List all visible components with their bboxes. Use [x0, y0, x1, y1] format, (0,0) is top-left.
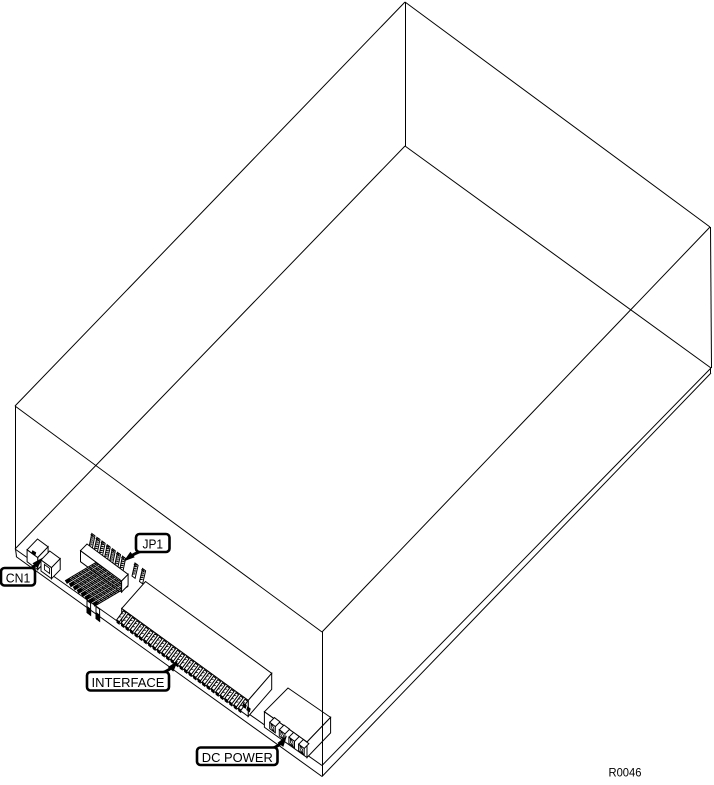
svg-text:R0046: R0046	[609, 766, 642, 780]
svg-text:CN1: CN1	[6, 570, 31, 585]
svg-text:INTERFACE: INTERFACE	[92, 675, 165, 690]
svg-text:JP1: JP1	[143, 537, 164, 552]
svg-text:DC POWER: DC POWER	[202, 750, 273, 765]
